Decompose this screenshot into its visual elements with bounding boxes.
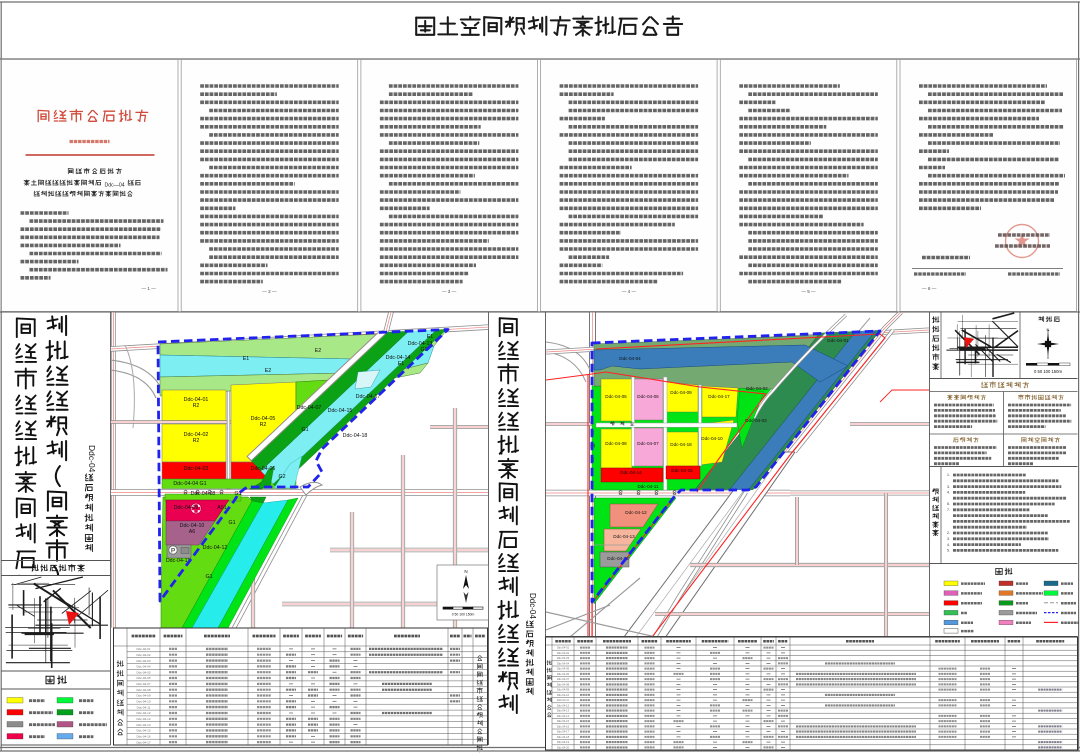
svg-text:Ddc-04-02: Ddc-04-02: [557, 651, 570, 655]
svg-text:R2: R2: [193, 438, 200, 444]
svg-text:Ddc-04-20: Ddc-04-20: [557, 746, 570, 750]
svg-text:G1: G1: [228, 520, 235, 526]
svg-text:Ddc-04-15: Ddc-04-15: [671, 468, 693, 473]
svg-text:R2: R2: [193, 403, 200, 409]
svg-text:Ddc-04-04: Ddc-04-04: [557, 662, 570, 666]
svg-text:Ddc-04-04: Ddc-04-04: [136, 665, 150, 669]
svg-text:E1: E1: [398, 361, 405, 367]
svg-text:Ddc-04-02: Ddc-04-02: [746, 386, 768, 391]
svg-text:Ddc-04-05: Ddc-04-05: [605, 394, 627, 399]
svg-text:Ddc-04-08: Ddc-04-08: [191, 491, 216, 497]
svg-text:Ddc-04-10: Ddc-04-10: [136, 700, 150, 704]
svg-text:Ddc-04-12: Ddc-04-12: [625, 510, 647, 515]
svg-text:Ddc-04-11: Ddc-04-11: [137, 705, 151, 709]
svg-text:Ddc-04-09: Ddc-04-09: [174, 505, 199, 511]
svg-text:Ddc-04: Ddc-04: [87, 445, 97, 473]
svg-text:Ddc-04-11: Ddc-04-11: [637, 484, 659, 489]
svg-text:G2: G2: [278, 474, 285, 480]
svg-text:Ddc-04-15: Ddc-04-15: [557, 719, 570, 723]
svg-text:Ddc-04-01: Ddc-04-01: [136, 647, 150, 651]
svg-text:E1: E1: [243, 356, 250, 362]
svg-text:Ddc-04-12: Ddc-04-12: [203, 545, 228, 551]
svg-text:Ddc-04-03: Ddc-04-03: [184, 466, 209, 472]
svg-text:Ddc-04-18: Ddc-04-18: [557, 735, 570, 739]
svg-text:Ddc-04: Ddc-04: [528, 593, 537, 619]
svg-text:Ddc-04-15: Ddc-04-15: [136, 729, 150, 733]
svg-text:Ddc-04-16: Ddc-04-16: [136, 735, 150, 739]
svg-text:Ddc-04-09: Ddc-04-09: [670, 390, 692, 395]
svg-text:Ddc-04-06: Ddc-04-06: [251, 466, 276, 472]
svg-text:Ddc-04-12: Ddc-04-12: [136, 711, 150, 715]
svg-text:N: N: [464, 569, 467, 574]
svg-text:A6: A6: [189, 529, 196, 535]
svg-text:Ddc-04-01: Ddc-04-01: [557, 646, 570, 650]
svg-text:Ddc-04-07: Ddc-04-07: [136, 682, 150, 686]
svg-text:— 5 —: — 5 —: [801, 289, 816, 294]
svg-text:Ddc-04-05: Ddc-04-05: [136, 670, 150, 674]
svg-text:— 2 —: — 2 —: [262, 289, 277, 294]
svg-text:Ddc-04-08: Ddc-04-08: [605, 441, 627, 446]
svg-text:Ddc-04-04 G1: Ddc-04-04 G1: [173, 481, 206, 487]
svg-text:6.: 6.: [947, 502, 950, 506]
svg-text:Ddc-04-18: Ddc-04-18: [670, 442, 692, 447]
svg-text:Ddc-04-03: Ddc-04-03: [557, 656, 570, 660]
svg-text:G1: G1: [301, 427, 308, 433]
svg-text:Ddc-04-11: Ddc-04-11: [557, 698, 569, 702]
svg-text:Ddc-04-14: Ddc-04-14: [620, 470, 642, 475]
svg-text:R2: R2: [260, 422, 267, 428]
svg-text:Ddc-04-14: Ddc-04-14: [557, 714, 570, 718]
svg-text:Ddc-04-03: Ddc-04-03: [136, 659, 150, 663]
svg-text:Ddc-04-07: Ddc-04-07: [557, 677, 570, 681]
svg-text:7.: 7.: [947, 508, 950, 512]
svg-text:Ddc-04-03: Ddc-04-03: [745, 418, 767, 423]
svg-text:Ddc-04-18: Ddc-04-18: [343, 433, 368, 439]
svg-text:E2: E2: [315, 348, 322, 354]
svg-text:Ddc-04-06: Ddc-04-06: [637, 394, 659, 399]
svg-text:Ddc-04-08: Ddc-04-08: [136, 688, 150, 692]
svg-text:Ddc-04-17: Ddc-04-17: [557, 730, 570, 734]
svg-text:Ddc-04-07: Ddc-04-07: [297, 405, 322, 411]
svg-text:Ddc-04-06: Ddc-04-06: [557, 672, 570, 676]
svg-text:Ddc-04-19: Ddc-04-19: [557, 740, 570, 744]
svg-text:— 1 —: — 1 —: [142, 286, 157, 291]
svg-text:5.: 5.: [947, 549, 950, 553]
svg-text:Ddc-04-04: Ddc-04-04: [619, 356, 641, 361]
svg-text:Ddc-04-14: Ddc-04-14: [136, 723, 150, 727]
svg-text:— 4 —: — 4 —: [622, 289, 637, 294]
svg-text:Ddc-04-02: Ddc-04-02: [136, 653, 150, 657]
svg-text:Ddc-04-07: Ddc-04-07: [637, 441, 659, 446]
svg-text:1.: 1.: [947, 473, 950, 477]
svg-text:Ddc-04-13: Ddc-04-13: [136, 717, 150, 721]
svg-text:Ddc-04-13: Ddc-04-13: [613, 534, 635, 539]
svg-text:4.: 4.: [947, 491, 950, 495]
svg-text:Ddc-04-09: Ddc-04-09: [557, 688, 570, 692]
svg-text:Ddc-04-17: Ddc-04-17: [708, 394, 730, 399]
svg-text:0 50 100 150m: 0 50 100 150m: [452, 613, 475, 617]
svg-text:2.: 2.: [947, 531, 950, 535]
svg-text:Ddc-04-06: Ddc-04-06: [136, 676, 150, 680]
svg-text:Ddc-04-13: Ddc-04-13: [557, 709, 570, 713]
svg-text:P: P: [171, 548, 176, 555]
svg-text:G1: G1: [205, 574, 212, 580]
svg-text:Ddc-04-10: Ddc-04-10: [701, 436, 723, 441]
svg-text:E1: E1: [427, 334, 434, 340]
svg-text:Ddc-04-12: Ddc-04-12: [557, 704, 570, 708]
svg-text:— 6 —: — 6 —: [922, 286, 937, 291]
svg-text:— 3 —: — 3 —: [442, 289, 457, 294]
svg-text:Ddc-04-17: Ddc-04-17: [136, 740, 150, 744]
svg-text:Ddc-04-09: Ddc-04-09: [136, 694, 150, 698]
svg-text:Ddc-04-08: Ddc-04-08: [557, 683, 570, 687]
svg-text:Ddc-04-15: Ddc-04-15: [328, 408, 353, 414]
svg-text:Ddc-04-16: Ddc-04-16: [557, 725, 570, 729]
svg-text:Ddc-04-17: Ddc-04-17: [356, 394, 381, 400]
svg-text:3.: 3.: [947, 537, 950, 541]
svg-text:E2: E2: [265, 368, 272, 374]
svg-text:Ddc-04-05: Ddc-04-05: [557, 667, 570, 671]
svg-text:3.: 3.: [947, 485, 950, 489]
svg-text:Ddc—04: Ddc—04: [105, 183, 125, 189]
svg-text:Ddc-04-01: Ddc-04-01: [827, 338, 849, 343]
svg-text:4.: 4.: [947, 543, 950, 547]
svg-text:0 50 100 150m: 0 50 100 150m: [1034, 369, 1062, 374]
svg-text:Ddc-04-10: Ddc-04-10: [557, 693, 570, 697]
svg-text:A51: A51: [217, 505, 226, 511]
